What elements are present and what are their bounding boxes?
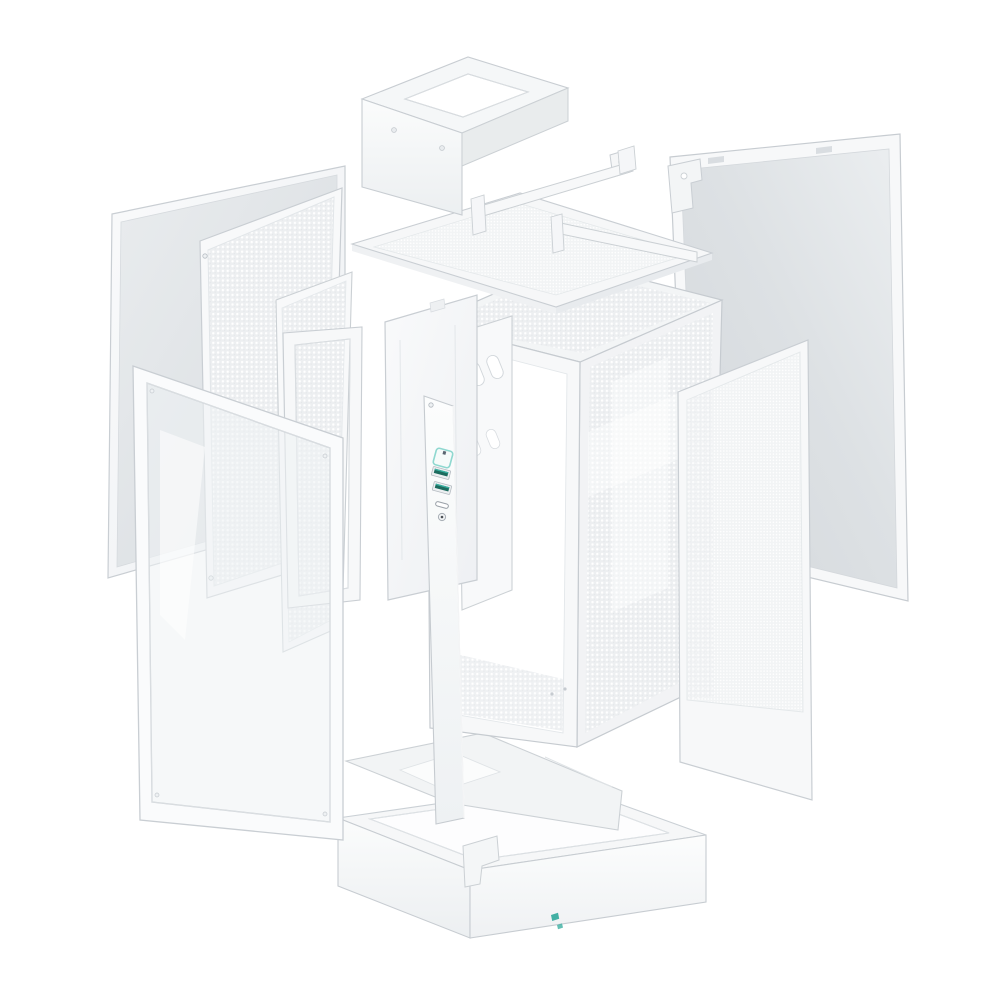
bracket-hole: [392, 128, 397, 133]
glass-screw: [323, 812, 327, 816]
panel-screw: [203, 254, 207, 258]
glass-screw: [323, 454, 327, 458]
audio-jack: [438, 513, 445, 520]
io-screw: [429, 403, 433, 407]
right-mesh-filter: [678, 340, 812, 800]
bracket-hole: [681, 173, 687, 179]
floor-screw: [550, 692, 553, 695]
glass-screw: [155, 793, 159, 797]
glass-front-panel: [133, 366, 343, 840]
floor-screw: [563, 687, 566, 690]
power-button: [433, 448, 454, 469]
bracket-hole: [440, 146, 445, 151]
glass-screw: [150, 389, 154, 393]
product-render: [0, 0, 1000, 1000]
exploded-case-render: [0, 0, 1000, 1000]
